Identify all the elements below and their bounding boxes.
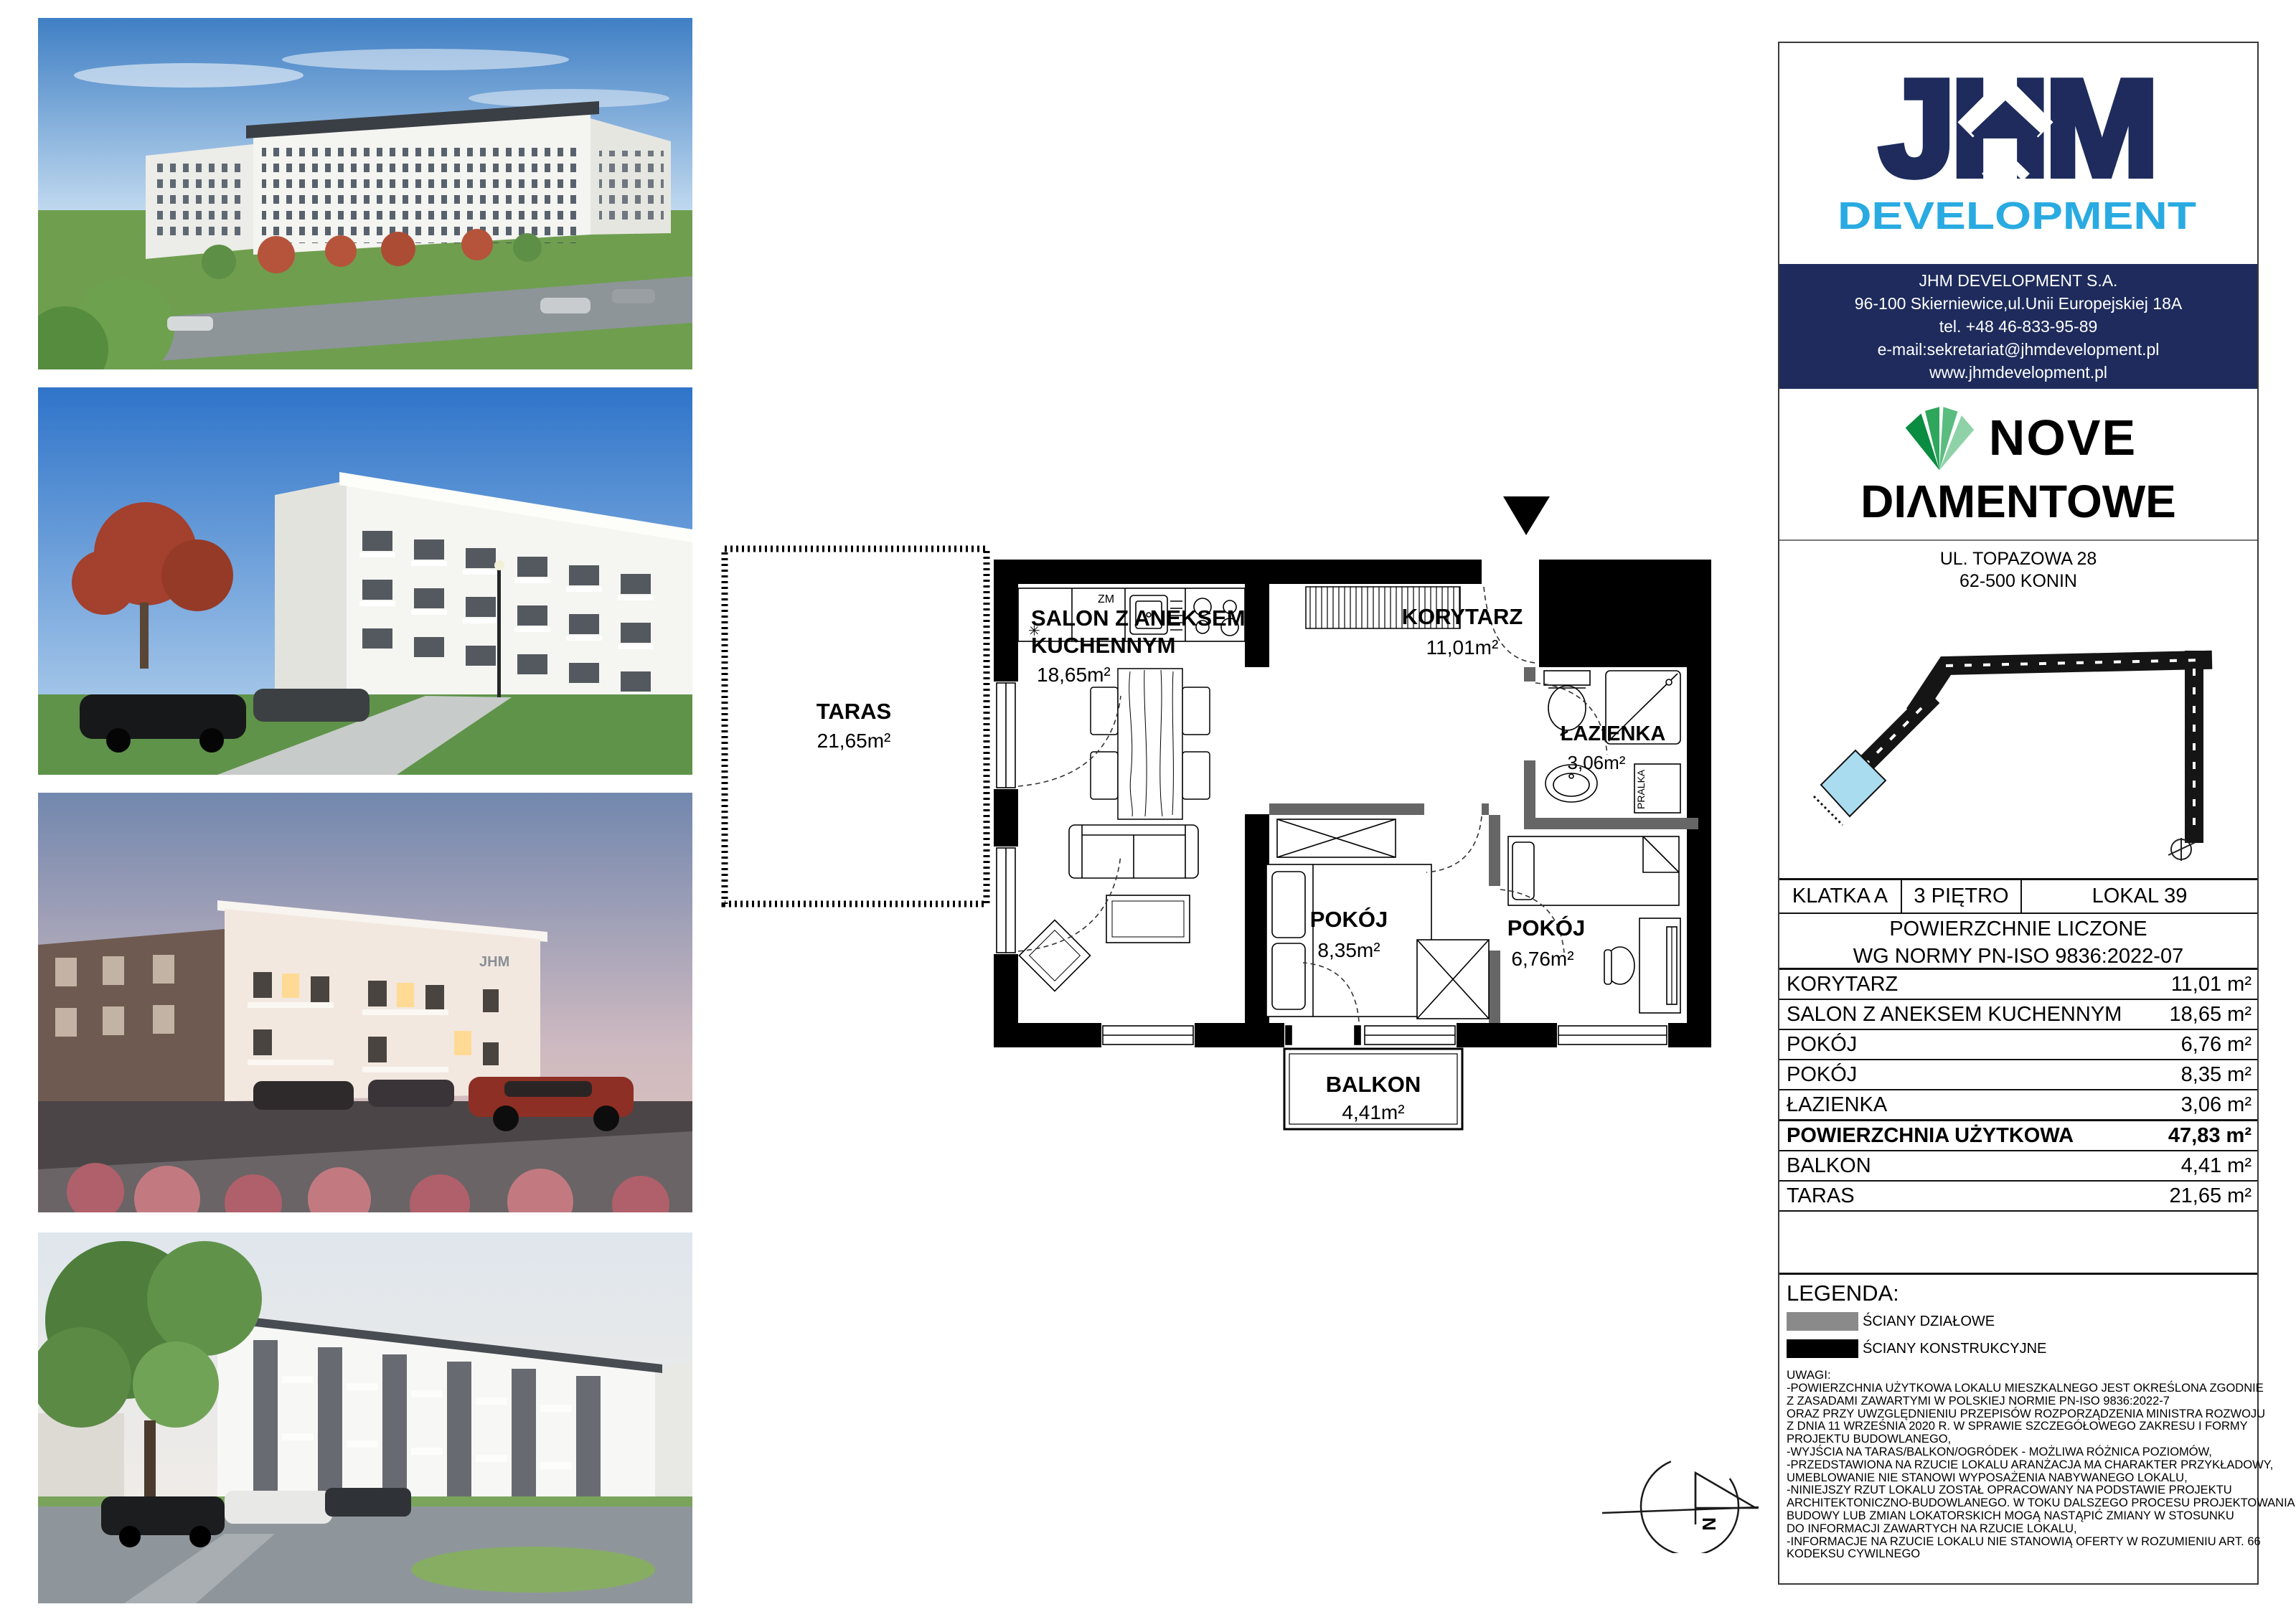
note-line: BUDOWY LUB ZMIAN LOKATORSKICH MOGĄ NASTĄ… [1787, 1510, 2257, 1523]
salon-label-1: SALON Z ANEKSEM [1031, 605, 1246, 631]
note-line: -INFORMACJE NA RZUCIE LOKALU NIE STANOWI… [1787, 1536, 2257, 1549]
lazienka-area: 3,06m² [1568, 752, 1626, 773]
area-row-value: 3,06 m² [2181, 1093, 2257, 1117]
area-row-value: 11,01 m² [2171, 973, 2257, 996]
unit-number: LOKAL 39 [2022, 880, 2257, 913]
areas-rows: KORYTARZ11,01 m²SALON Z ANEKSEM KUCHENNY… [1779, 970, 2257, 1212]
jhm-logo-art: JHM DEVELOPMENT [1825, 57, 2212, 250]
legend-label: ŚCIANY DZIAŁOWE [1863, 1314, 1995, 1330]
area-row-label: TARAS [1779, 1184, 2170, 1208]
floor-plan: TARAS 21,65m² BALKON 4,41m² [710, 488, 1765, 1191]
legend-and-notes: LEGENDA: ŚCIANY DZIAŁOWEŚCIANY KONSTRUKC… [1779, 1273, 2257, 1582]
balkon-area: 4,41m² [1342, 1101, 1404, 1123]
lazienka-label: ŁAZIENKA [1561, 722, 1666, 745]
legend-label: ŚCIANY KONSTRUKCYJNE [1863, 1341, 2046, 1357]
legend-item: ŚCIANY KONSTRUKCYJNE [1787, 1336, 2257, 1361]
area-row: SALON Z ANEKSEM KUCHENNYM18,65 m² [1779, 1000, 2257, 1030]
areas-table-title-2: WG NORMY PN-ISO 9836:2022-07 [1779, 943, 2257, 970]
area-row: POWIERZCHNIA UŻYTKOWA47,83 m² [1779, 1121, 2257, 1151]
render-photo-morning-art [38, 1232, 692, 1603]
salon-label-2: KUCHENNYM [1031, 633, 1176, 658]
note-line: UMEBLOWANIE NIE STANOWI WYPOSAŻENIA NABY… [1787, 1472, 2257, 1485]
notes-lines: -POWIERZCHNIA UŻYTKOWA LOKALU MIESZKALNE… [1787, 1382, 2257, 1561]
note-line: ARCHITEKTONICZNO-BUDOWLANEGO. W TOKU DAL… [1787, 1497, 2257, 1510]
note-line: -NINIEJSZY RZUT LOKALU ZOSTAŁ OPRACOWANY… [1787, 1484, 2257, 1497]
diamond-icon [1900, 402, 1979, 473]
area-row-value: 47,83 m² [2168, 1124, 2257, 1148]
project-name-line2: DIΛMENTOWE [1779, 475, 2257, 528]
salon-area: 18,65m² [1037, 664, 1111, 686]
area-row: POKÓJ6,76 m² [1779, 1030, 2257, 1060]
korytarz-area: 11,01m² [1426, 636, 1499, 659]
legend-title: LEGENDA: [1787, 1281, 2257, 1306]
area-row-label: KORYTARZ [1779, 973, 2171, 996]
room-taras: TARAS 21,65m² [725, 549, 987, 904]
area-row-label: POKÓJ [1779, 1063, 2181, 1087]
project-logo: NOVE DIΛMENTOWE [1779, 389, 2257, 539]
area-row: BALKON4,41 m² [1779, 1151, 2257, 1182]
taras-area: 21,65m² [817, 730, 891, 752]
render-photo-morning [38, 1232, 692, 1603]
legend-item: ŚCIANY DZIAŁOWE [1787, 1309, 2257, 1334]
pokoj-a-area: 8,35m² [1317, 939, 1380, 961]
washer-label: PRALKA [1635, 769, 1647, 809]
armchair [1020, 920, 1091, 991]
contact-line: e-mail:sekretariat@jhmdevelopment.pl [1779, 338, 2257, 361]
note-line: ORAZ PRZY UWZGLĘDNIENIU PRZEPISÓW ROZPOR… [1787, 1408, 2257, 1421]
north-label: N [1698, 1517, 1720, 1531]
contact-line: 96-100 Skierniewice,ul.Unii Europejskiej… [1779, 292, 2257, 315]
area-row-label: BALKON [1779, 1154, 2181, 1178]
contact-line: www.jhmdevelopment.pl [1779, 361, 2257, 384]
pokoj-b-label: POKÓJ [1507, 915, 1586, 940]
render-photo-street-art [38, 387, 692, 775]
sofa [1069, 825, 1198, 878]
render-photo-aerial-art [38, 18, 692, 369]
area-row-value: 18,65 m² [2170, 1003, 2257, 1027]
note-line: PROJEKTU BUDOWLANEGO, [1787, 1433, 2257, 1446]
area-row-value: 21,65 m² [2170, 1184, 2257, 1208]
area-row-label: ŁAZIENKA [1779, 1093, 2181, 1117]
info-panel: JHM DEVELOPMENT JHM DEVELOPMENT S.A.96-1… [1778, 42, 2259, 1585]
pokoj-b-area: 6,76m² [1511, 948, 1573, 970]
area-row-value: 4,41 m² [2181, 1154, 2257, 1178]
north-compass-icon: N [1589, 1446, 1761, 1553]
korytarz-label: KORYTARZ [1402, 604, 1523, 629]
area-row-label: SALON Z ANEKSEM KUCHENNYM [1779, 1003, 2170, 1027]
coffee-table [1106, 895, 1190, 943]
area-row-value: 8,35 m² [2181, 1063, 2257, 1087]
dining-set [1091, 669, 1210, 819]
legend-swatch [1787, 1339, 1858, 1358]
areas-table-title-1: POWIERZCHNIE LICZONE [1779, 915, 2257, 943]
address-street: UL. TOPAZOWA 28 [1779, 548, 2257, 570]
area-row: TARAS21,65 m² [1779, 1182, 2257, 1212]
note-line: Z ZASADAMI ZAWARTYMI W POLSKIEJ NORMIE P… [1787, 1395, 2257, 1408]
jhm-logo-subtext: DEVELOPMENT [1838, 194, 2196, 237]
render-photo-aerial [38, 18, 692, 369]
render-photo-evening-art: JHM [38, 793, 692, 1212]
pokoj-a-label: POKÓJ [1310, 906, 1388, 932]
photo-building-sign: JHM [479, 954, 509, 970]
areas-table-header: POWIERZCHNIE LICZONE WG NORMY PN-ISO 983… [1779, 914, 2257, 970]
area-row: KORYTARZ11,01 m² [1779, 970, 2257, 1000]
unit-floor: 3 PIĘTRO [1902, 880, 2022, 913]
corridor-end-wardrobe [1417, 940, 1489, 1019]
entrance-arrow-icon [1503, 496, 1550, 535]
note-line: -PRZEDSTAWIONA NA RZUCIE LOKALU ARANŻACJ… [1787, 1459, 2257, 1472]
site-plan [1779, 597, 2257, 878]
legend-swatch [1787, 1312, 1858, 1331]
render-photo-evening: JHM [38, 793, 692, 1212]
note-line: -POWIERZCHNIA UŻYTKOWA LOKALU MIESZKALNE… [1787, 1382, 2257, 1395]
render-photo-street [38, 387, 692, 775]
notes-title: UWAGI: [1787, 1368, 2257, 1382]
area-row: POKÓJ8,35 m² [1779, 1060, 2257, 1090]
note-line: KODEKSU CYWILNEGO [1787, 1548, 2257, 1561]
address-city: 62-500 KONIN [1779, 570, 2257, 593]
unit-staircase: KLATKA A [1779, 880, 1902, 913]
unit-header-row: KLATKA A 3 PIĘTRO LOKAL 39 [1779, 878, 2257, 914]
area-row-value: 6,76 m² [2181, 1033, 2257, 1057]
note-line: Z DNIA 11 WRZEŚNIA 2020 R. W SPRAWIE SZC… [1787, 1420, 2257, 1433]
room-balkon: BALKON 4,41m² [1284, 1049, 1462, 1129]
contact-line: tel. +48 46-833-95-89 [1779, 315, 2257, 338]
contact-bar: JHM DEVELOPMENT S.A.96-100 Skierniewice,… [1779, 264, 2257, 389]
note-line: -WYJŚCIA NA TARAS/BALKON/OGRÓDEK - MOŻLI… [1787, 1446, 2257, 1459]
contact-line: JHM DEVELOPMENT S.A. [1779, 269, 2257, 292]
area-row-label: POKÓJ [1779, 1033, 2181, 1057]
site-plan-art [1779, 597, 2257, 878]
project-address: UL. TOPAZOWA 28 62-500 KONIN [1779, 539, 2257, 597]
note-line: DO INFORMACJI ZAWARTYCH NA RZUCIE LOKALU… [1787, 1523, 2257, 1536]
dishwasher-label: ZM [1098, 593, 1114, 605]
jhm-logo: JHM DEVELOPMENT [1779, 43, 2257, 264]
jhm-logo-text: JHM [1879, 57, 2154, 204]
project-name-line1: NOVE [1989, 409, 2137, 466]
area-row-label: POWIERZCHNIA UŻYTKOWA [1779, 1124, 2168, 1148]
taras-label: TARAS [817, 699, 891, 724]
area-row: ŁAZIENKA3,06 m² [1779, 1090, 2257, 1121]
balkon-label: BALKON [1326, 1072, 1421, 1097]
legend-items: ŚCIANY DZIAŁOWEŚCIANY KONSTRUKCYJNE [1787, 1309, 2257, 1361]
